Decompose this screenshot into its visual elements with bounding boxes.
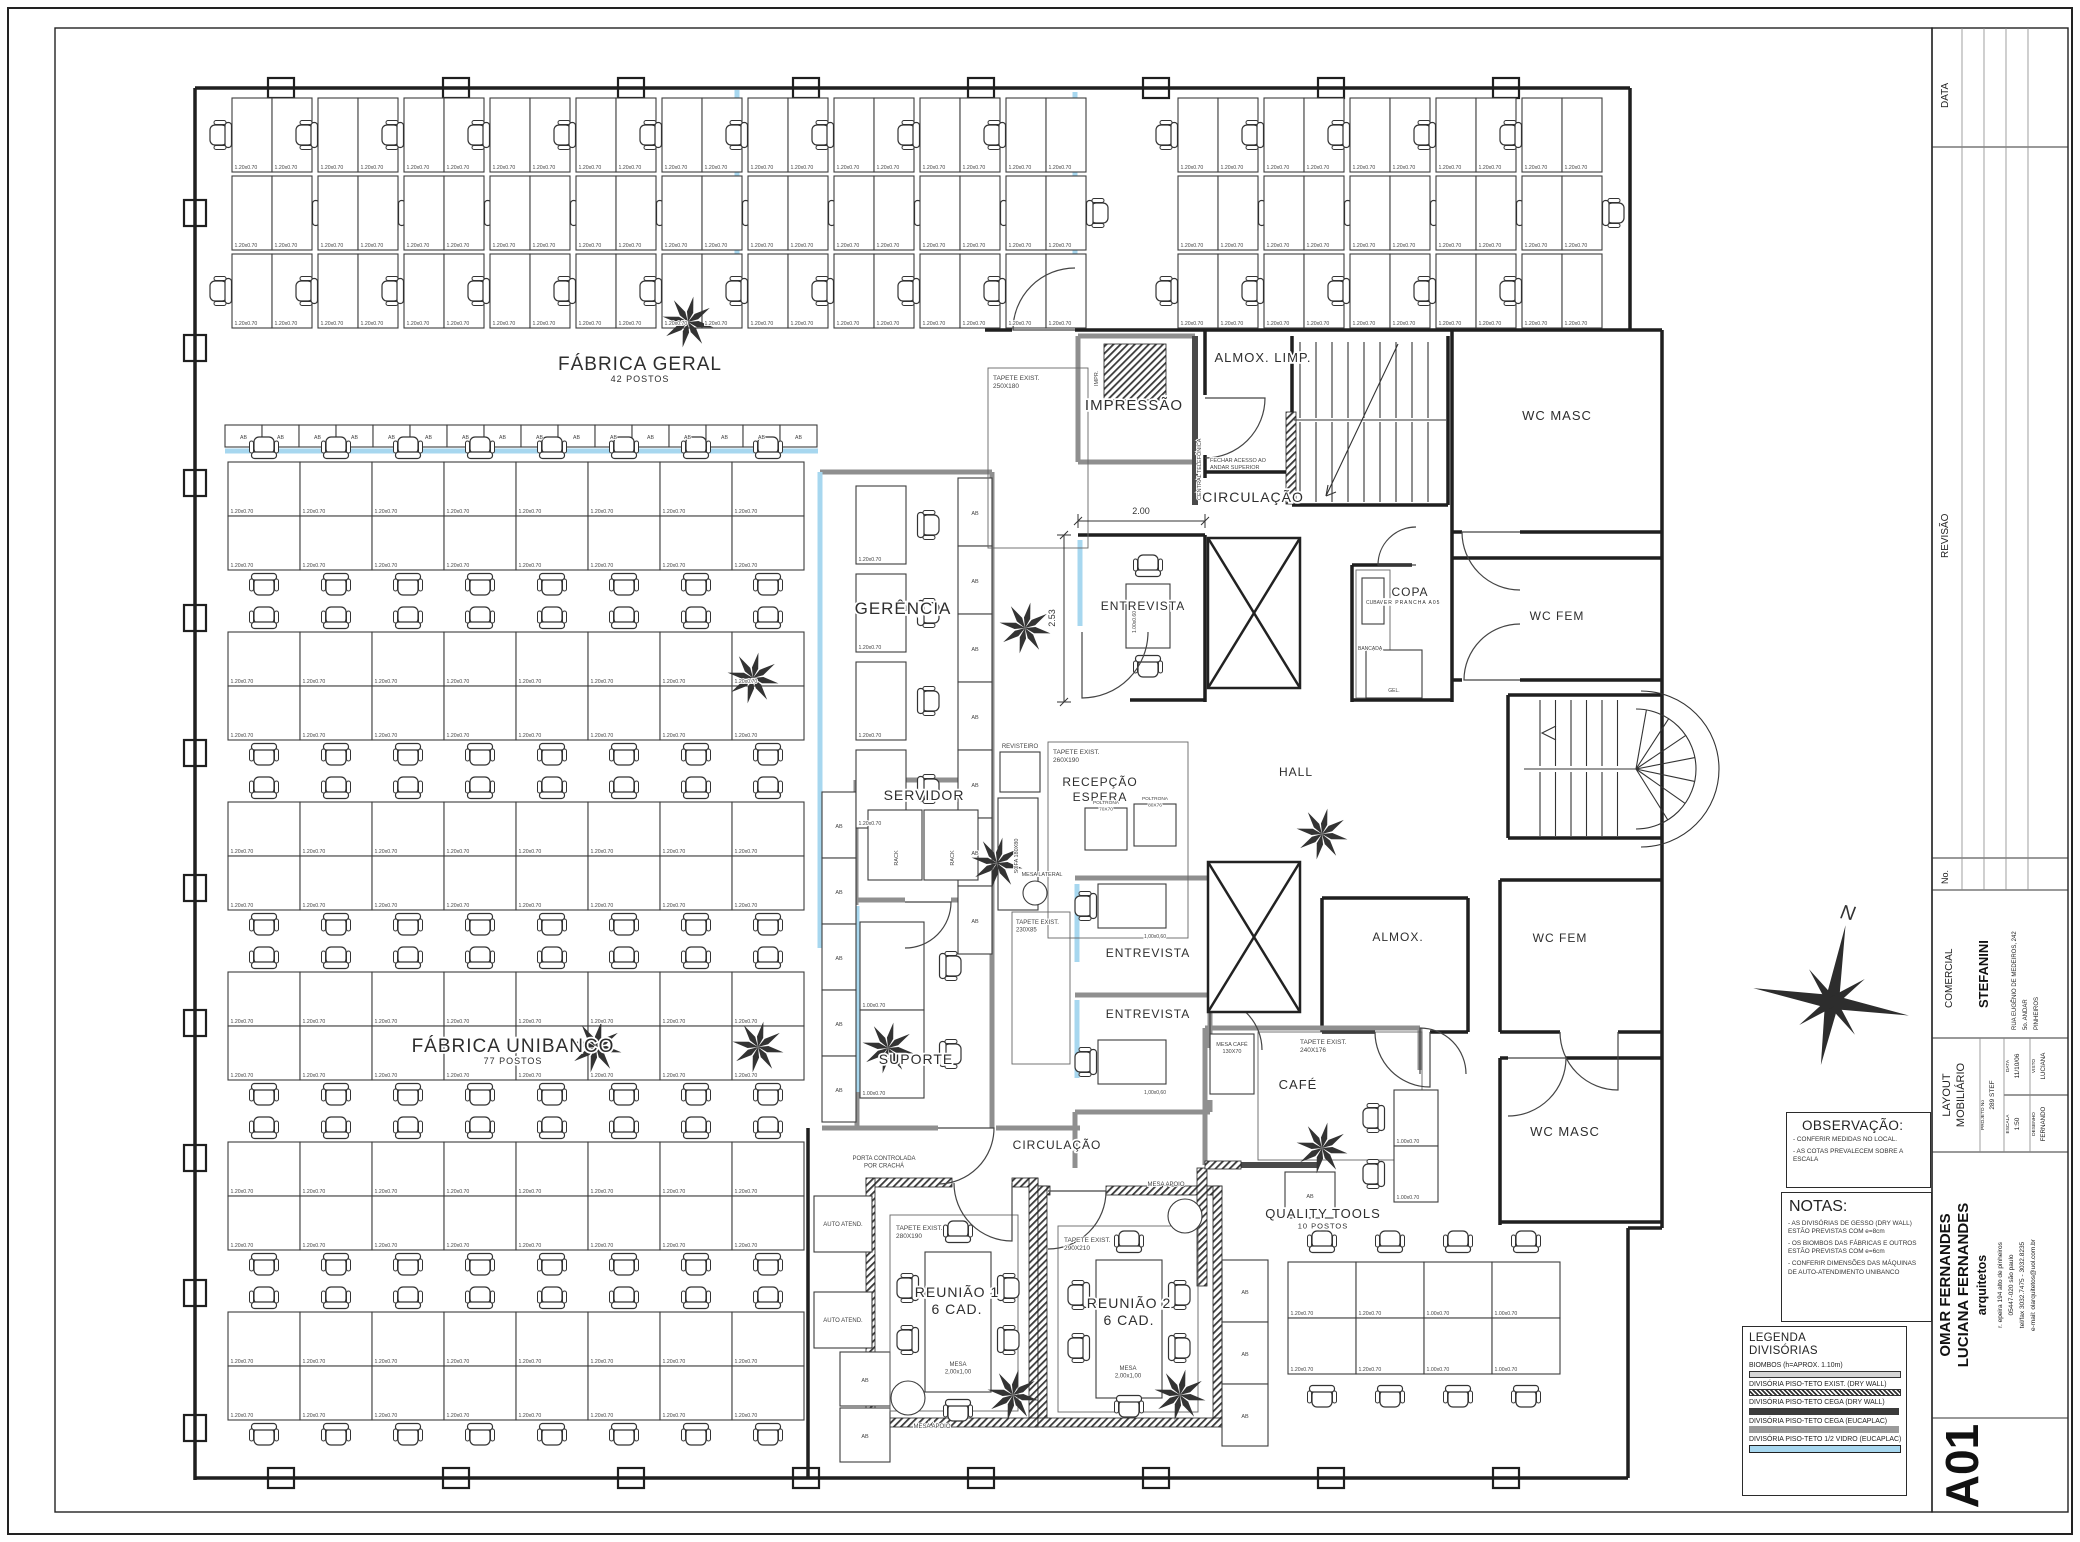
text-label: AB bbox=[835, 956, 843, 962]
room-label: CIRCULAÇÃO bbox=[1202, 489, 1304, 505]
furniture-rect bbox=[1104, 344, 1166, 400]
text-label: 1.20x0.70 bbox=[1525, 321, 1548, 327]
chair bbox=[1169, 1334, 1191, 1363]
text-label: 1.20x0.70 bbox=[619, 165, 642, 171]
text-label: 1.20x0.70 bbox=[1049, 165, 1072, 171]
text-label: 1.20x0.70 bbox=[591, 733, 614, 739]
furniture-rect bbox=[300, 1142, 372, 1196]
furniture-rect bbox=[228, 802, 300, 856]
furniture-rect bbox=[732, 1142, 804, 1196]
text-label: 1.20x0.70 bbox=[447, 733, 470, 739]
text-label: 1.20x0.70 bbox=[519, 903, 542, 909]
visto-value: LUCIANA bbox=[2040, 1052, 2047, 1080]
text-label: 1.20x0.70 bbox=[1221, 321, 1244, 327]
annotation: MESA LATERAL bbox=[1022, 872, 1063, 878]
text-label: AB bbox=[971, 919, 979, 925]
text-line: 70X70 bbox=[1099, 806, 1113, 812]
furniture-rect bbox=[444, 176, 484, 250]
chair bbox=[1308, 1231, 1337, 1253]
furniture-rect bbox=[490, 254, 530, 328]
furniture-rect bbox=[588, 856, 660, 910]
chair bbox=[984, 277, 1006, 306]
text-label: 1.20x0.70 bbox=[375, 1413, 398, 1419]
text-label: AB bbox=[971, 511, 979, 517]
chair bbox=[382, 121, 404, 150]
furniture-rect bbox=[228, 1196, 300, 1250]
text-label: AB bbox=[1241, 1352, 1249, 1358]
room-label: RECEPÇÃO bbox=[1062, 775, 1137, 789]
chair bbox=[296, 277, 318, 306]
text-label: 1.20x0.70 bbox=[735, 1243, 758, 1249]
text-label: 1.20x0.70 bbox=[375, 679, 398, 685]
chair bbox=[554, 121, 576, 150]
text-label: 1.20x0.70 bbox=[1307, 243, 1330, 249]
chair bbox=[394, 437, 423, 459]
text-label: 1.20x0.70 bbox=[591, 509, 614, 515]
chair bbox=[394, 1084, 423, 1106]
legend-item-label: BIOMBOS (h=APROX. 1.10m) bbox=[1749, 1362, 1900, 1369]
furniture-rect bbox=[444, 1312, 516, 1366]
furniture-rect bbox=[834, 98, 874, 172]
chair bbox=[610, 744, 639, 766]
text-label: 1.00x0.70 bbox=[1397, 1195, 1420, 1201]
text-label: 1.20x0.70 bbox=[877, 165, 900, 171]
text-label: 1.20x0.70 bbox=[303, 563, 326, 569]
chair bbox=[1115, 1396, 1144, 1418]
text-label: 1.20x0.70 bbox=[1181, 321, 1204, 327]
furniture-rect bbox=[300, 686, 372, 740]
text-label: 1.20x0.70 bbox=[407, 321, 430, 327]
text-label: 1.20x0.70 bbox=[235, 321, 258, 327]
text-line: 130X70 bbox=[1223, 1049, 1242, 1055]
room-label: WC FEM bbox=[1533, 931, 1588, 945]
legend-item-label: DIVISÓRIA PISO-TETO EXIST. (DRY WALL) bbox=[1749, 1381, 1900, 1388]
furniture-rect bbox=[1356, 1262, 1424, 1318]
furniture-rect bbox=[372, 1142, 444, 1196]
chair bbox=[466, 947, 495, 969]
chair bbox=[682, 947, 711, 969]
text-label: 1.00x0.70 bbox=[1495, 1367, 1518, 1373]
text-label: AB bbox=[499, 435, 506, 441]
firm-address-line: e-mail: olarquitetos@uol.com.br bbox=[2030, 1238, 2037, 1331]
text-label: 1.20x0.70 bbox=[303, 509, 326, 515]
text-label: 1.20x0.70 bbox=[519, 1189, 542, 1195]
text-label: 1.20x0.70 bbox=[591, 1359, 614, 1365]
furniture-rect bbox=[228, 1026, 300, 1080]
furniture-rect bbox=[660, 856, 732, 910]
floor-plan-canvas: N 1.20x0.701.20x0.701.20x0.701.20x0.701.… bbox=[0, 0, 2080, 1542]
chair bbox=[1512, 1386, 1541, 1408]
notas-item: - OS BIOMBOS DAS FÁBRICAS E OUTROS ESTÃO… bbox=[1788, 1240, 1925, 1257]
room-label: REUNIÃO 1 bbox=[915, 1284, 999, 1300]
furniture-rect bbox=[588, 1196, 660, 1250]
chair bbox=[394, 744, 423, 766]
chair bbox=[1328, 277, 1350, 306]
chair bbox=[754, 744, 783, 766]
annotation: PORTA CONTROLADAPOR CRACHÁ bbox=[852, 1156, 915, 1170]
furniture-rect bbox=[834, 254, 874, 328]
text-label: 1.20x0.70 bbox=[303, 849, 326, 855]
text-label: 1.20x0.70 bbox=[735, 509, 758, 515]
room-label: SERVIDOR bbox=[884, 787, 965, 803]
furniture-rect bbox=[732, 516, 804, 570]
room-label: QUALITY TOOLS bbox=[1265, 1206, 1381, 1221]
stairs-elevators: N bbox=[1057, 342, 1926, 1079]
text-label: 1.20x0.70 bbox=[923, 165, 946, 171]
chair bbox=[610, 947, 639, 969]
furniture-rect bbox=[1522, 98, 1562, 172]
annotation: CENTRAL TELEFÔNICA bbox=[1196, 438, 1203, 500]
data-header: DATA bbox=[1940, 82, 1951, 108]
notas-item: - AS DIVISÓRIAS DE GESSO (DRY WALL) ESTÃ… bbox=[1788, 1220, 1925, 1237]
furniture-rect bbox=[1098, 1040, 1166, 1084]
text-label: 1.20x0.70 bbox=[519, 1243, 542, 1249]
furniture-rect bbox=[232, 176, 272, 250]
chair bbox=[538, 1117, 567, 1139]
text-label: 1.20x0.70 bbox=[963, 321, 986, 327]
text-label: 1.20x0.70 bbox=[1049, 321, 1072, 327]
text-label: 1.20x0.70 bbox=[591, 563, 614, 569]
furniture-rect bbox=[300, 802, 372, 856]
chair bbox=[250, 437, 279, 459]
visto-label: VISTO bbox=[2031, 1059, 2037, 1074]
chair bbox=[610, 574, 639, 596]
chair bbox=[250, 914, 279, 936]
text-label: 1.20x0.70 bbox=[1221, 243, 1244, 249]
text-label: 1.20x0.70 bbox=[447, 243, 470, 249]
text-label: AB bbox=[795, 435, 802, 441]
text-label: 1.20x0.70 bbox=[275, 165, 298, 171]
chair bbox=[610, 1424, 639, 1446]
room-label: GERÊNCIA bbox=[855, 599, 952, 618]
chair bbox=[812, 277, 834, 306]
text-label: 1.20x0.70 bbox=[663, 679, 686, 685]
text-label: 1.20x0.70 bbox=[1439, 321, 1462, 327]
text-label: 1.20x0.70 bbox=[735, 1359, 758, 1365]
text-label: 1.20x0.70 bbox=[591, 1073, 614, 1079]
chair bbox=[466, 1084, 495, 1106]
text-label: 1.20x0.70 bbox=[705, 321, 728, 327]
room-sublabel: 77 POSTOS bbox=[484, 1056, 543, 1066]
chair bbox=[466, 1287, 495, 1309]
text-label: 1.20x0.70 bbox=[1307, 321, 1330, 327]
chair bbox=[682, 1424, 711, 1446]
chair bbox=[394, 574, 423, 596]
text-line: 80X76 bbox=[1148, 802, 1162, 808]
chair bbox=[1169, 1281, 1191, 1310]
room-sublabel: 10 POSTOS bbox=[1298, 1222, 1349, 1231]
furniture-rect bbox=[372, 1312, 444, 1366]
chair bbox=[1328, 121, 1350, 150]
chair bbox=[322, 1084, 351, 1106]
chair bbox=[322, 607, 351, 629]
text-label: AB bbox=[388, 435, 395, 441]
text-label: AB bbox=[1241, 1414, 1249, 1420]
chair bbox=[682, 574, 711, 596]
text-label: 1.20x0.70 bbox=[519, 679, 542, 685]
chair bbox=[918, 511, 940, 540]
furniture-rect bbox=[616, 176, 656, 250]
furniture-rect bbox=[444, 686, 516, 740]
text-label: 1.20x0.70 bbox=[303, 679, 326, 685]
chair bbox=[394, 1117, 423, 1139]
furniture-rect bbox=[1264, 176, 1304, 250]
text-label: 1.20x0.70 bbox=[447, 1359, 470, 1365]
chair bbox=[322, 777, 351, 799]
annotation: 1,00x0,60 bbox=[1144, 1090, 1166, 1096]
text-label: AB bbox=[573, 435, 580, 441]
furniture-rect bbox=[1476, 176, 1516, 250]
text-label: 1.20x0.70 bbox=[1353, 243, 1376, 249]
room-label: CIRCULAÇÃO bbox=[1013, 1138, 1102, 1152]
chair bbox=[468, 121, 490, 150]
chair bbox=[998, 1326, 1020, 1355]
furniture-rect bbox=[866, 1178, 952, 1187]
text-label: 1.20x0.70 bbox=[877, 243, 900, 249]
text-label: 1.20x0.70 bbox=[519, 1359, 542, 1365]
furniture-rect bbox=[516, 856, 588, 910]
furniture-rect bbox=[732, 1312, 804, 1366]
annotation: 1.00x0.60 bbox=[1132, 611, 1138, 633]
text-label: 1.20x0.70 bbox=[663, 1413, 686, 1419]
project-title: LAYOUT bbox=[1941, 1073, 1953, 1116]
furniture-rect bbox=[1038, 1186, 1047, 1426]
chair bbox=[250, 574, 279, 596]
chair bbox=[250, 744, 279, 766]
text-label: 1.20x0.70 bbox=[1353, 165, 1376, 171]
room-label: FÁBRICA GERAL bbox=[558, 354, 722, 375]
text-label: 1.20x0.70 bbox=[231, 733, 254, 739]
text-label: AB bbox=[610, 435, 617, 441]
furniture-rect bbox=[732, 856, 804, 910]
text-label: 1.20x0.70 bbox=[1479, 165, 1502, 171]
furniture-rect bbox=[660, 516, 732, 570]
furniture-rect bbox=[1436, 98, 1476, 172]
text-label: 1.20x0.70 bbox=[663, 1189, 686, 1195]
text-label: 1.20x0.70 bbox=[447, 1413, 470, 1419]
chair bbox=[210, 121, 232, 150]
chair bbox=[382, 277, 404, 306]
text-label: 1.20x0.70 bbox=[235, 243, 258, 249]
text-label: 1.20x0.70 bbox=[447, 1019, 470, 1025]
mesa-apoio bbox=[1168, 1199, 1202, 1233]
text-label: 1.20x0.70 bbox=[303, 1019, 326, 1025]
furniture-rect bbox=[588, 972, 660, 1026]
annotation: MESA APOIO bbox=[1147, 1182, 1184, 1188]
door-arc bbox=[1560, 1032, 1618, 1090]
furniture-rect bbox=[228, 1366, 300, 1420]
chair bbox=[250, 607, 279, 629]
text-label: 1.20x0.70 bbox=[447, 1073, 470, 1079]
text-label: 1.20x0.70 bbox=[837, 165, 860, 171]
annotation: IMPR. bbox=[1094, 370, 1100, 386]
chair bbox=[296, 121, 318, 150]
observacao-box: OBSERVAÇÃO: - CONFERIR MEDIDAS NO LOCAL.… bbox=[1786, 1112, 1931, 1188]
text-label: 1.20x0.70 bbox=[963, 165, 986, 171]
text-label: 1.20x0.70 bbox=[591, 1243, 614, 1249]
legend-item-label: DIVISÓRIA PISO-TETO 1/2 VIDRO (EUCAPLAC) bbox=[1749, 1436, 1900, 1443]
text-label: 1.20x0.70 bbox=[665, 165, 688, 171]
chair bbox=[322, 914, 351, 936]
text-label: 1.20x0.70 bbox=[963, 243, 986, 249]
chair bbox=[682, 1254, 711, 1276]
text-label: 1.20x0.70 bbox=[591, 1413, 614, 1419]
text-label: 1.20x0.70 bbox=[533, 321, 556, 327]
text-label: 1.20x0.70 bbox=[1267, 165, 1290, 171]
text-label: 1.20x0.70 bbox=[1359, 1311, 1382, 1317]
furniture-rect bbox=[516, 1312, 588, 1366]
text-label: 1.20x0.70 bbox=[303, 1189, 326, 1195]
chair bbox=[610, 1287, 639, 1309]
furniture-rect bbox=[576, 98, 616, 172]
chair bbox=[610, 777, 639, 799]
firm-tag: arquitetos bbox=[1975, 1255, 1989, 1315]
text-label: 1.20x0.70 bbox=[1565, 165, 1588, 171]
furniture-rect bbox=[444, 516, 516, 570]
chair bbox=[1134, 656, 1163, 678]
furniture-rect bbox=[300, 632, 372, 686]
text-label: 1.20x0.70 bbox=[375, 1019, 398, 1025]
furniture-rect bbox=[404, 176, 444, 250]
furniture-rect bbox=[660, 1026, 732, 1080]
chair bbox=[466, 574, 495, 596]
furniture-rect bbox=[732, 686, 804, 740]
chair bbox=[640, 277, 662, 306]
legend-swatch-biombo bbox=[1749, 1371, 1901, 1378]
text-label: AB bbox=[835, 824, 843, 830]
text-label: AB bbox=[721, 435, 728, 441]
chair bbox=[538, 607, 567, 629]
chair bbox=[250, 947, 279, 969]
furniture-rect bbox=[660, 1142, 732, 1196]
furniture-rect bbox=[228, 856, 300, 910]
annotation: GEL. bbox=[1388, 688, 1399, 694]
furniture-rect bbox=[588, 1366, 660, 1420]
furniture-rect bbox=[232, 254, 272, 328]
text-line: PORTA CONTROLADA bbox=[852, 1156, 915, 1162]
furniture-rect bbox=[1436, 254, 1476, 328]
text-label: 1.20x0.70 bbox=[791, 321, 814, 327]
chair bbox=[812, 121, 834, 150]
chair bbox=[538, 1424, 567, 1446]
text-label: 1.20x0.70 bbox=[231, 1019, 254, 1025]
furniture-rect bbox=[272, 176, 312, 250]
furniture-rect bbox=[444, 1366, 516, 1420]
furniture-rect bbox=[1046, 176, 1086, 250]
text-label: AB bbox=[462, 435, 469, 441]
text-label: 1.20x0.70 bbox=[303, 1359, 326, 1365]
chair bbox=[754, 607, 783, 629]
room-label: ALMOX. LIMP. bbox=[1214, 350, 1311, 365]
text-label: 1.20x0.70 bbox=[1565, 321, 1588, 327]
text-label: 1.00x0.70 bbox=[1495, 1311, 1518, 1317]
mesa-apoio bbox=[891, 1381, 925, 1415]
text-label: 1.20x0.70 bbox=[447, 509, 470, 515]
chair bbox=[610, 1084, 639, 1106]
text-label: 1.20x0.70 bbox=[375, 1073, 398, 1079]
text-label: AB bbox=[647, 435, 654, 441]
furniture-rect bbox=[834, 176, 874, 250]
furniture-rect bbox=[1218, 176, 1258, 250]
text-label: 1.20x0.70 bbox=[533, 243, 556, 249]
text-label: 1.20x0.70 bbox=[923, 243, 946, 249]
text-line: MESA bbox=[949, 1362, 966, 1368]
text-label: 1.20x0.70 bbox=[1525, 165, 1548, 171]
furniture-rect bbox=[444, 1142, 516, 1196]
legend-item-label: DIVISÓRIA PISO-TETO CEGA (DRY WALL) bbox=[1749, 1399, 1900, 1406]
drawing-sheet: N 1.20x0.701.20x0.701.20x0.701.20x0.701.… bbox=[0, 0, 2080, 1542]
text-label: 1.20x0.70 bbox=[591, 903, 614, 909]
text-label: 1.20x0.70 bbox=[231, 679, 254, 685]
text-label: 1.20x0.70 bbox=[361, 321, 384, 327]
furniture-rect bbox=[372, 632, 444, 686]
data-label: DATA bbox=[2005, 1059, 2011, 1072]
text-label: 1.20x0.70 bbox=[361, 165, 384, 171]
furniture-rect bbox=[856, 662, 906, 740]
furniture-rect bbox=[516, 686, 588, 740]
escala-value: 1:50 bbox=[2014, 1117, 2021, 1130]
mesa-lateral bbox=[1023, 881, 1047, 905]
furniture-rect bbox=[576, 254, 616, 328]
annotation: SOFA 180X80 bbox=[1014, 839, 1020, 874]
text-label: 1.20x0.70 bbox=[321, 243, 344, 249]
furniture-rect bbox=[1012, 912, 1070, 1064]
chair bbox=[682, 607, 711, 629]
projeto-label: PROJETO No bbox=[1980, 1100, 1986, 1130]
room-label: WC FEM bbox=[1530, 609, 1585, 623]
text-label: 1.20x0.70 bbox=[735, 903, 758, 909]
text-line: 230X85 bbox=[1016, 928, 1037, 934]
text-label: 1.20x0.70 bbox=[591, 1189, 614, 1195]
furniture-rect bbox=[444, 632, 516, 686]
text-label: 1.20x0.70 bbox=[665, 243, 688, 249]
room-label: ENTREVISTA bbox=[1106, 1007, 1190, 1021]
text-label: 1.20x0.70 bbox=[1479, 321, 1502, 327]
furniture-rect bbox=[660, 462, 732, 516]
furniture-rect bbox=[1264, 98, 1304, 172]
chair bbox=[1363, 1160, 1385, 1189]
chair bbox=[610, 1254, 639, 1276]
chair bbox=[1376, 1231, 1405, 1253]
text-label: 1.20x0.70 bbox=[303, 903, 326, 909]
text-label: 1.20x0.70 bbox=[1221, 165, 1244, 171]
text-label: AB bbox=[1306, 1194, 1314, 1200]
chair bbox=[322, 947, 351, 969]
room-label: CAFÉ bbox=[1279, 1077, 1318, 1092]
text-label: 1.00x0.70 bbox=[863, 1091, 886, 1097]
room-label: HALL bbox=[1279, 765, 1313, 779]
text-label: 1.20x0.70 bbox=[791, 243, 814, 249]
chair bbox=[1242, 121, 1264, 150]
furniture-rect bbox=[920, 254, 960, 328]
notas-title: NOTAS: bbox=[1789, 1198, 1926, 1216]
text-label: 1.20x0.70 bbox=[859, 733, 882, 739]
legend-title-line1: LEGENDA bbox=[1749, 1332, 1806, 1344]
legend-box: LEGENDA DIVISÓRIAS BIOMBOS (h=APROX. 1.1… bbox=[1742, 1326, 1907, 1496]
chair bbox=[538, 1287, 567, 1309]
furniture-rect bbox=[588, 686, 660, 740]
room-label: FÁBRICA UNIBANCO bbox=[412, 1036, 615, 1057]
text-label: 1.00x0.70 bbox=[1427, 1367, 1450, 1373]
chair bbox=[1308, 1386, 1337, 1408]
text-label: AB bbox=[684, 435, 691, 441]
furniture-rect bbox=[1046, 254, 1086, 328]
chair bbox=[1156, 277, 1178, 306]
furniture-rect bbox=[788, 176, 828, 250]
furniture-rect bbox=[1288, 1262, 1356, 1318]
furniture-rect bbox=[1492, 1318, 1560, 1374]
annotation: AUTO ATEND. bbox=[823, 1222, 863, 1228]
